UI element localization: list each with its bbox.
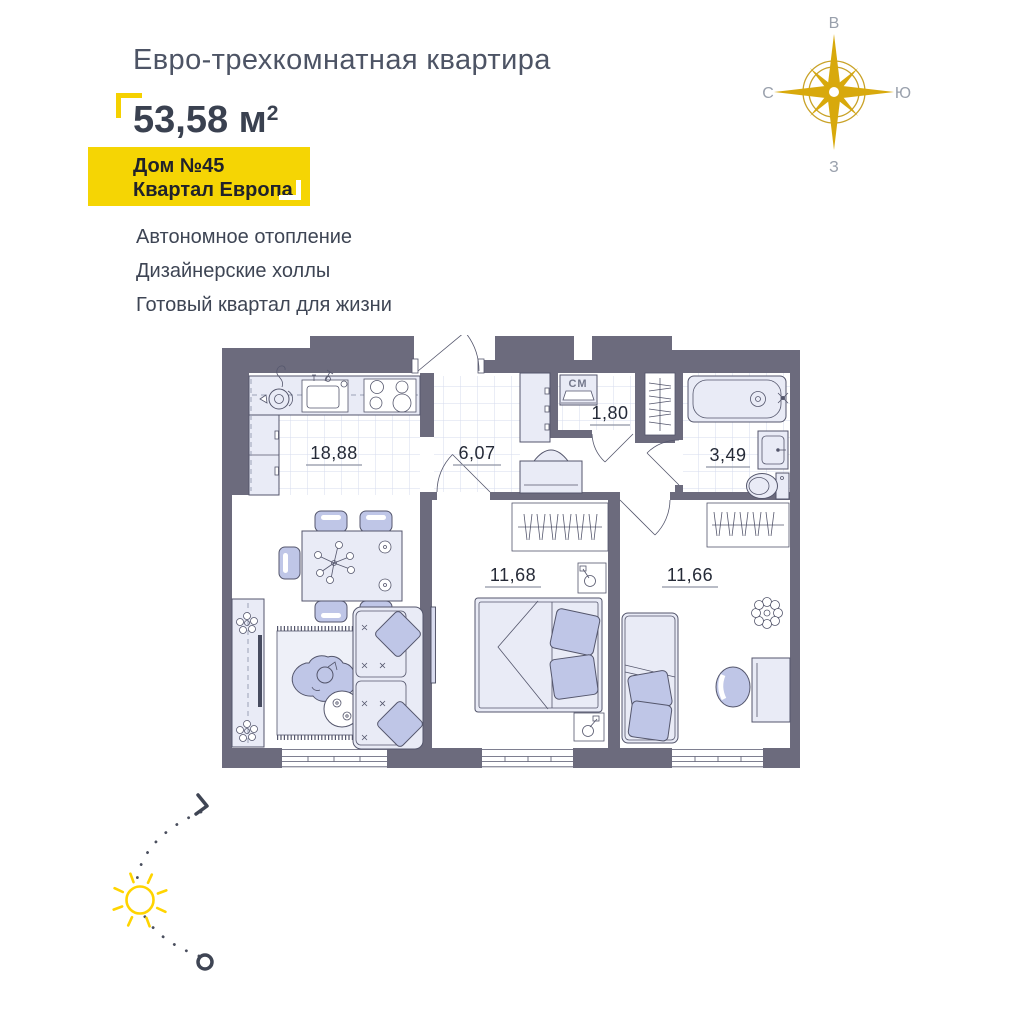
path-arrow-icon [196,795,207,814]
feature-item: Автономное отопление [136,226,392,249]
double-bed [475,598,602,712]
pillow [549,654,598,700]
pillow [549,608,600,656]
window [482,748,573,768]
hall-cabinet [520,373,550,442]
desk [752,658,790,722]
chair [315,511,347,532]
compass-letter-west: З [829,159,839,176]
page-canvas: Евро-трехкомнатная квартира 53,58 м2 Дом… [0,0,1018,1018]
tv [431,607,436,683]
door-arc [647,440,679,485]
windows [282,748,763,768]
chair [360,511,392,532]
nightstand-lamp [574,713,604,741]
sun-icon [114,874,167,927]
kitchen-living-label: 18,88 [310,443,358,463]
washer-label: СМ [569,378,588,390]
path-end-circle-icon [198,955,212,969]
feature-item: Дизайнерские холлы [136,260,392,283]
compass-letter-east: В [829,15,840,32]
door-arc [620,500,670,535]
hanger-closet [645,373,675,435]
laundry-label: 1,80 [591,403,628,423]
feature-list: Автономное отопление Дизайнерские холлы … [136,226,392,328]
compass: В Ю З С [758,8,918,178]
hallway-label: 6,07 [458,443,495,463]
bedroom2-furniture [622,503,790,743]
area-number: 53,58 м [133,99,267,141]
window [282,748,387,768]
chair [315,601,347,622]
desk-chair [716,667,750,707]
sofa [353,607,424,749]
bedroom1-furniture [431,503,608,741]
tv [258,635,262,707]
wardrobe [512,503,608,551]
badge-line2: Квартал Европа [133,178,293,202]
washing-machine: СМ [560,375,597,405]
sun-path-dots [137,812,201,956]
plant-icon [752,598,783,629]
sun-path [95,788,230,988]
tv-console [232,599,264,747]
compass-letter-north: С [762,85,774,102]
single-bed [622,613,678,743]
area-superscript: 2 [267,102,279,125]
badge-corner-bracket-icon [279,180,301,200]
compass-rose-icon [774,34,894,150]
wardrobe [707,503,789,547]
stove [364,379,416,412]
bathroom-label: 3,49 [709,445,746,465]
compass-letter-south: Ю [895,85,911,102]
washbasin [758,431,788,469]
area-value: 53,58 м2 [133,99,278,142]
feature-item: Готовый квартал для жизни [136,294,392,317]
bedroom2-label: 11,66 [667,565,713,585]
floorplan: СМ [222,335,800,768]
house-badge: Дом №45 Квартал Европа [88,147,310,206]
nightstand-lamp [578,563,606,593]
toilet [747,473,790,499]
entrance-door [412,335,484,373]
apartment-title: Евро-трехкомнатная квартира [133,44,551,77]
chair [279,547,300,579]
bathtub [688,376,788,422]
hall-console-mirror [520,450,582,493]
window [672,748,763,768]
pillow [628,700,673,741]
dining-set [279,511,402,622]
door-arc [592,434,633,462]
bedroom1-label: 11,68 [490,565,536,585]
badge-line1: Дом №45 [133,154,293,178]
badge-text: Дом №45 Квартал Европа [133,154,293,202]
